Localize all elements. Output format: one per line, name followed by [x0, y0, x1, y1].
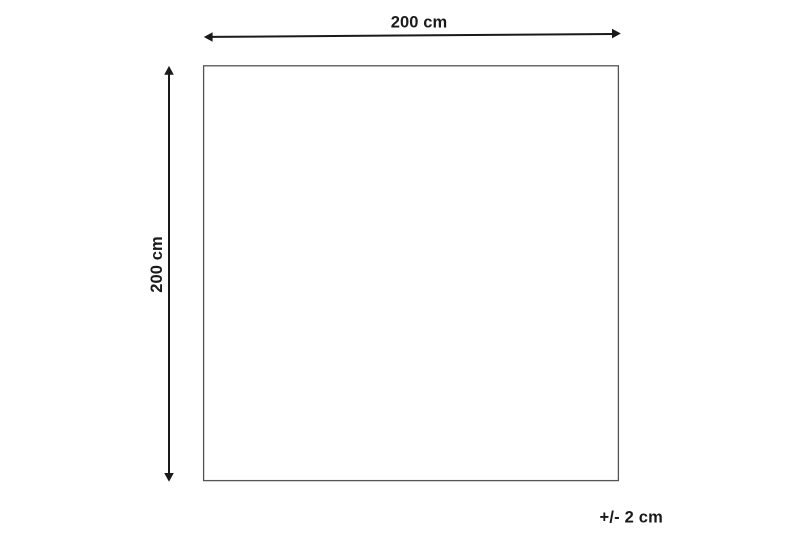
svg-text:+/- 2 cm: +/- 2 cm	[600, 508, 664, 526]
svg-text:200 cm: 200 cm	[148, 236, 166, 293]
svg-text:200 cm: 200 cm	[391, 13, 448, 31]
